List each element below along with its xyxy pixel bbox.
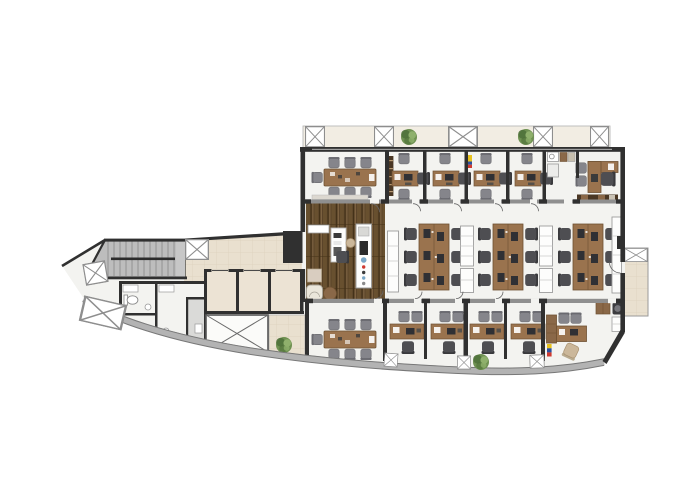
wall (305, 301, 309, 359)
unit-dot (362, 282, 365, 285)
wall (576, 151, 579, 178)
wall (236, 269, 239, 314)
wall (383, 301, 387, 361)
planter-icon (276, 337, 292, 353)
wall (204, 269, 207, 314)
desk-papers (334, 241, 342, 245)
credenza-box (609, 195, 615, 200)
wall (504, 301, 507, 359)
planter-icon (401, 129, 417, 145)
vanity (159, 285, 174, 292)
column-icon (306, 127, 325, 147)
credenza (312, 195, 368, 200)
planter-icon (473, 354, 489, 370)
executive-chair (601, 172, 616, 187)
guest-chair (558, 313, 569, 324)
unit-dot (362, 271, 365, 274)
floor-plan-drawing (0, 0, 700, 500)
stair-landing (176, 240, 185, 277)
elevator-cab (271, 272, 300, 311)
floor-plan-canvas (0, 0, 700, 500)
wall (119, 281, 207, 284)
base-cabinet (548, 164, 559, 177)
unit-dot (362, 265, 365, 268)
elevator-bank (204, 269, 304, 314)
east-wall (620, 273, 625, 332)
vanity (123, 285, 138, 292)
column-icon (83, 261, 108, 285)
wall (204, 311, 304, 314)
column-icon (625, 248, 648, 261)
stair-south-wall (99, 277, 187, 280)
desk-monitor (591, 174, 598, 182)
west-wall (301, 269, 306, 302)
counter-appliance (568, 153, 575, 162)
sink-icon (145, 304, 151, 310)
glazed-partition-south (305, 299, 625, 304)
elevator-door (244, 270, 260, 271)
planter-icon (518, 129, 534, 145)
elevator-cab (239, 272, 268, 311)
side-table (308, 269, 322, 282)
core-wall (283, 231, 303, 263)
north-wall-glazing (312, 149, 612, 150)
wall (155, 284, 158, 344)
wall (465, 151, 469, 200)
wall (385, 151, 389, 200)
desk-monitor (334, 233, 342, 238)
armchair (307, 285, 323, 300)
west-wall (301, 151, 306, 232)
coffee-machine (560, 153, 567, 162)
unit-dot (362, 276, 365, 279)
desk-laptop (570, 329, 578, 336)
wall-stub (617, 236, 625, 249)
wall (268, 269, 271, 314)
desk-pad (559, 329, 565, 335)
credenza-box (598, 195, 605, 200)
wall (506, 151, 510, 200)
column-icon (449, 127, 478, 147)
column-icon (590, 127, 608, 147)
stair-north-wall (104, 239, 184, 242)
bench-desk-set (404, 224, 464, 290)
unit-screen (360, 241, 369, 255)
toilet-icon (124, 295, 138, 305)
unit-dial (361, 257, 367, 263)
open-plan (388, 217, 622, 293)
north-ledge (303, 126, 610, 148)
stool (346, 239, 355, 248)
round-table (324, 287, 337, 300)
sideboard (308, 225, 329, 233)
building-interior (62, 151, 625, 371)
column-icon (530, 355, 545, 369)
wall (541, 301, 545, 361)
elevator-door (212, 270, 228, 271)
elevator-cab (207, 272, 236, 311)
wall (543, 151, 547, 200)
task-chair (336, 251, 349, 264)
east-balcony (624, 248, 648, 316)
wall (464, 301, 469, 361)
elevator-door (276, 270, 292, 271)
bench-desk-set (478, 224, 538, 290)
desk-pad (608, 164, 614, 171)
tall-cabinet (547, 315, 557, 343)
wall (423, 151, 427, 200)
storage-cabinet (540, 269, 553, 293)
storage-cabinet (461, 269, 474, 293)
wall (121, 313, 155, 316)
utility-room-floor (188, 299, 204, 342)
credenza-box (581, 195, 588, 200)
column-icon (534, 127, 553, 147)
bench-desk-set (558, 224, 618, 290)
wall (186, 297, 205, 300)
stair-handrail (111, 258, 175, 261)
wall (424, 301, 427, 359)
column-icon (186, 240, 209, 260)
column-icon (457, 356, 470, 369)
unit-top-box (359, 227, 370, 236)
storage-cabinet (388, 231, 399, 292)
printer-drum (614, 305, 621, 312)
column-icon (384, 353, 398, 367)
wall-flag (547, 344, 552, 357)
guest-chair (570, 313, 581, 324)
column-icon (375, 127, 394, 147)
utility-fixture (195, 324, 202, 333)
glazed-partition-north (302, 199, 625, 203)
